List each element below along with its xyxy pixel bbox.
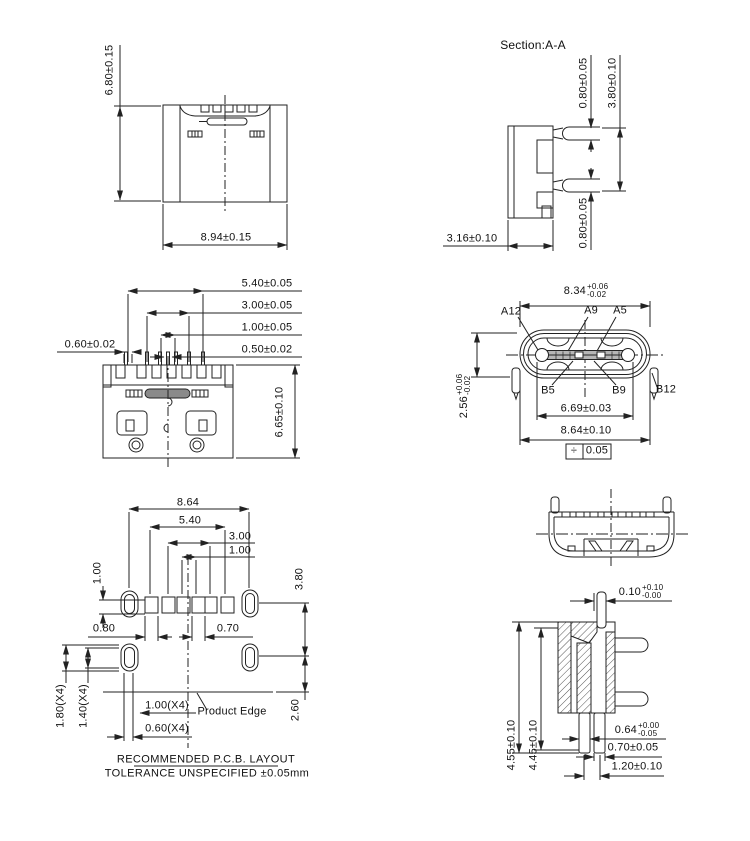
dim-pcb-slot-140: 1.40(X4) (79, 684, 90, 728)
dim-section-pin-top: 0.80±0.05 (579, 58, 590, 109)
flatness-value: 0.05 (586, 446, 608, 457)
dim-pcb-300: 3.00 (229, 532, 251, 543)
pin-label-a12: A12 (501, 307, 521, 318)
dim-side-445: 4.45±0.10 (529, 720, 540, 771)
dim-pcb-100: 1.00 (229, 546, 251, 557)
dim-value: 0.10 (619, 587, 641, 598)
dim-top-540: 5.40±0.05 (242, 279, 293, 290)
tol-minus: -0.00 (642, 592, 663, 600)
dim-top-050: 0.50±0.02 (242, 345, 293, 356)
dim-side-gap: 0.10 +0.10 -0.00 (619, 584, 663, 600)
dim-side-120: 1.20±0.10 (612, 762, 663, 773)
pin-label-b9: B9 (612, 386, 626, 397)
top-view-drawing (57, 291, 302, 470)
dim-pcb-pad-height: 1.00 (93, 562, 104, 584)
dim-pcb-slot-100: 1.00(X4) (145, 701, 189, 712)
tol-minus: -0.02 (587, 291, 608, 299)
dim-pcb-slot-060: 0.60(X4) (145, 724, 189, 735)
tolerance-stack: +0.06 -0.02 (456, 374, 472, 395)
dim-value: 8.34 (564, 286, 586, 297)
tol-minus: -0.02 (464, 374, 472, 395)
dim-top-pin-width: 0.60±0.02 (65, 340, 116, 351)
dim-value: 0.64 (615, 725, 637, 736)
dim-front-width: 8.94±0.15 (201, 233, 252, 244)
section-aa-drawing (443, 55, 626, 251)
dim-top-300: 3.00±0.05 (242, 301, 293, 312)
dim-pcb-864: 8.64 (177, 498, 199, 509)
dim-face-height: 2.56 +0.06 -0.02 (456, 374, 472, 418)
dim-pcb-080: 0.80 (93, 624, 115, 635)
dim-side-064: 0.64 +0.00 -0.05 (615, 722, 659, 738)
dim-top-depth: 6.65±0.10 (275, 387, 286, 438)
technical-drawing-canvas: 6.80±0.15 8.94±0.15 Section:A-A 0.80±0.0… (0, 0, 750, 841)
dim-front-height: 6.80±0.15 (105, 45, 116, 96)
dim-face-tongue-width: 6.69±0.03 (561, 404, 612, 415)
dim-pcb-slot-180: 1.80(X4) (56, 684, 67, 728)
dim-face-width-outer: 8.64±0.10 (561, 426, 612, 437)
front-view-drawing (114, 45, 287, 250)
dim-section-pin-bottom: 0.80±0.05 (579, 198, 590, 249)
dim-pcb-row-spacing: 3.80 (295, 568, 306, 590)
section-title: Section:A-A (500, 39, 566, 51)
pin-label-b12: B12 (656, 385, 676, 396)
flatness-symbol-icon: ÷ (571, 446, 577, 457)
dim-section-pin-spacing: 3.80±0.10 (608, 58, 619, 109)
dim-side-455: 4.55±0.10 (507, 720, 518, 771)
pcb-note-tolerance: TOLERANCE UNSPECIFIED ±0.05mm (105, 769, 309, 780)
dim-section-depth: 3.16±0.10 (447, 234, 498, 245)
dim-top-100: 1.00±0.05 (242, 323, 293, 334)
dim-pcb-edge-260: 2.60 (291, 699, 302, 721)
dim-face-width-inner: 8.34 +0.06 -0.02 (564, 283, 608, 299)
product-edge-label: Product Edge (197, 707, 266, 718)
tolerance-stack: +0.06 -0.02 (587, 283, 608, 299)
tolerance-stack: +0.10 -0.00 (642, 584, 663, 600)
tolerance-stack: +0.00 -0.05 (638, 722, 659, 738)
dim-pcb-070: 0.70 (217, 624, 239, 635)
pcb-note-title: RECOMMENDED P.C.B. LAYOUT (117, 755, 295, 766)
tol-minus: -0.05 (638, 730, 659, 738)
dim-side-070: 0.70±0.05 (608, 743, 659, 754)
pin-label-a5: A5 (613, 306, 627, 317)
dim-value: 2.56 (459, 396, 470, 418)
pin-label-b5: B5 (541, 386, 555, 397)
dim-pcb-540: 5.40 (179, 516, 201, 527)
pin-label-a9: A9 (584, 306, 598, 317)
drawing-linework (0, 0, 750, 841)
